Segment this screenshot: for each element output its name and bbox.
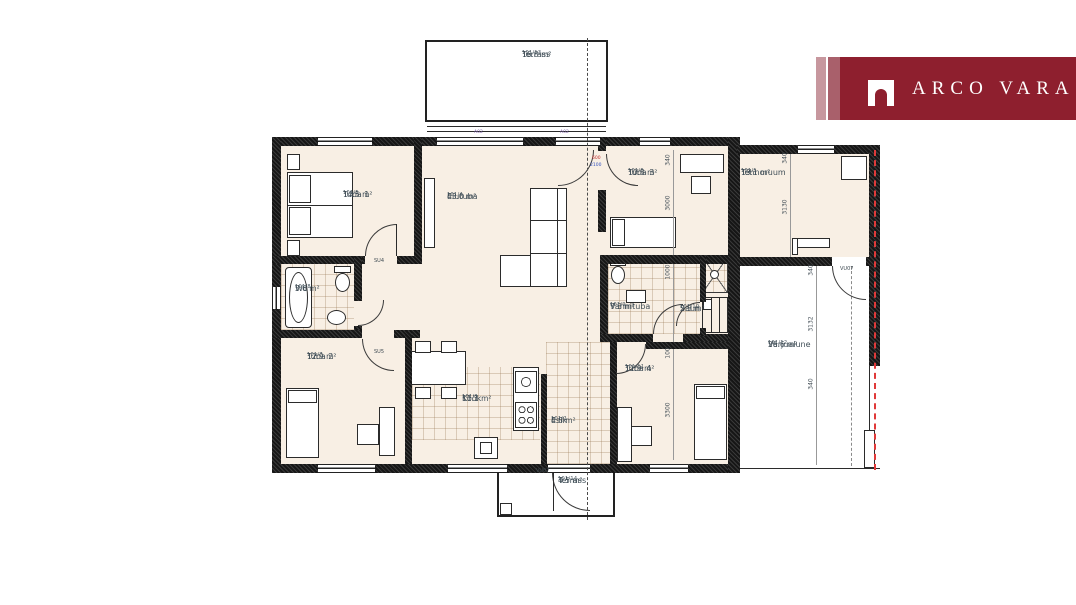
chair (441, 387, 457, 399)
window (650, 464, 688, 473)
stove (515, 402, 537, 428)
counter-return (792, 238, 798, 255)
room-area: 3.6 m² (295, 284, 320, 294)
pillow (612, 219, 625, 246)
wall-wc-tuba2 (272, 330, 362, 338)
chair (415, 341, 431, 353)
window-code-a02: A02 (560, 130, 569, 135)
terrace-top-edge-line-1 (427, 126, 606, 127)
arch-doorway-icon-hole (875, 89, 887, 106)
room-area: 11.1 m² (462, 394, 491, 404)
room-area: 10.8 m² (628, 168, 657, 178)
sofa-seam (531, 253, 566, 254)
kitchen-appliance-inner (480, 442, 492, 454)
sofa-seam (557, 189, 558, 286)
room-area: 4.5 m² (558, 476, 583, 486)
wall-kook-esik (541, 374, 547, 464)
desk (631, 426, 652, 446)
window (798, 145, 834, 154)
water-tank (841, 156, 867, 180)
dimension-label: 3132 (808, 316, 815, 331)
dimension-label: 340 (665, 154, 672, 165)
toilet-bowl (611, 266, 625, 284)
room-area: 12.9 m² (307, 352, 336, 362)
toilet-bowl (335, 273, 350, 292)
wall-tuba3-vannituba (600, 255, 728, 264)
sofa-seam (531, 220, 566, 221)
wall-vannituba-bottom-left (600, 334, 653, 342)
wall-vannituba-left (600, 255, 608, 340)
window (448, 464, 507, 473)
brand-name: ARCO VARA (912, 57, 1072, 120)
chair (441, 341, 457, 353)
room-area: 14.5 m² (343, 190, 372, 200)
room-area: 2.3 m² (680, 304, 705, 314)
arco-vara-logo: ARCO VARA (816, 57, 1076, 120)
arch-doorway-icon (868, 80, 894, 106)
window (318, 464, 375, 473)
dimension-label: 340 (808, 378, 815, 389)
bed-divider-line (287, 205, 353, 206)
wall-tuba2-kook (405, 331, 412, 464)
floor-plan-canvas: 101/13 Terrass 16.8 m² 101/5 Tuba 1 14.5… (0, 0, 1076, 605)
section-line (587, 38, 588, 520)
wing-wall-mid-left (737, 257, 832, 266)
door-leaf-terrace-bottom (553, 473, 554, 511)
wall-hall-lower (598, 190, 606, 232)
terrace-step (500, 503, 512, 515)
room-area: 26.6 m² (768, 340, 797, 350)
dimension-label: 3130 (782, 199, 789, 214)
terrace-top-edge-line-2 (427, 131, 606, 132)
terrace-top-outline (425, 40, 608, 122)
wall-wc-right-upper (354, 256, 362, 301)
wall-tuba4-top-right (646, 342, 728, 349)
door-leaf-tuba1 (396, 224, 397, 256)
wall-saun-left-lower (700, 328, 706, 336)
desk (680, 154, 724, 173)
door-code-vu07: VU07 (840, 266, 853, 272)
window (272, 287, 281, 309)
plot-boundary-red-dashed (874, 150, 876, 470)
wall-main-right (728, 137, 740, 473)
pillow (288, 390, 317, 403)
room-area: 16.8 m² (522, 50, 551, 60)
toilet-tank (334, 266, 351, 273)
tv-cabinet (424, 178, 435, 248)
dimension-label: 340 (808, 264, 815, 275)
dimension-label: 1000 (665, 264, 672, 279)
dimension-chain-line (816, 262, 817, 465)
room-area: 4.8 m² (551, 416, 576, 426)
dimension-label: 340 (782, 152, 789, 163)
sofa-vertical-arm (530, 188, 567, 287)
chair (415, 387, 431, 399)
sofa-horizontal-arm (500, 255, 531, 287)
door-code-su5: SU5 (374, 349, 384, 355)
room-area: 43.0 m² (447, 192, 476, 202)
chair (691, 176, 711, 194)
terrace-slider-window (437, 137, 523, 146)
window (318, 137, 372, 146)
room-code: 101/9 (610, 302, 626, 309)
pillow (696, 386, 725, 399)
terrace-door-threshold (548, 464, 590, 473)
pillow (289, 207, 311, 235)
dimension-label: 3000 (665, 195, 672, 210)
logo-stripe-mid (828, 57, 840, 120)
wardrobe (379, 407, 395, 456)
sink (327, 310, 346, 325)
wall-tuba1-bottom (272, 256, 365, 264)
door-size-width: 600 (592, 156, 601, 161)
wall-tuba1-elutuba (414, 137, 422, 264)
wall-saun-left-upper (700, 255, 706, 302)
door-size-height: 2100 (590, 163, 601, 168)
window-code-a02: A02 (474, 130, 483, 135)
sauna-bench-line (719, 298, 720, 332)
wing-wall-mid-right (866, 257, 880, 266)
room-area: 13.1 m² (741, 168, 770, 178)
kitchen-sink (515, 371, 537, 393)
window (640, 137, 670, 146)
room-area: 11.9 m² (625, 364, 654, 374)
dimension-label: 100 (665, 347, 672, 358)
shower-drain (710, 270, 719, 279)
logo-stripe-light (816, 57, 826, 120)
dining-table (407, 351, 466, 385)
bathtub-basin (289, 272, 308, 323)
entrance-door-threshold (556, 137, 600, 146)
nightstand (287, 240, 300, 256)
door-code-su4: SU4 (374, 258, 384, 264)
wardrobe (617, 407, 632, 462)
dimension-label: 3300 (665, 402, 672, 417)
varjualune-edge-bottom (737, 468, 880, 469)
door-code-vu07: VU07 (536, 468, 549, 474)
dimension-chain-line (790, 150, 791, 257)
esik-tiles (546, 342, 610, 464)
pillow (289, 175, 311, 203)
nightstand (287, 154, 300, 170)
desk (357, 424, 379, 445)
